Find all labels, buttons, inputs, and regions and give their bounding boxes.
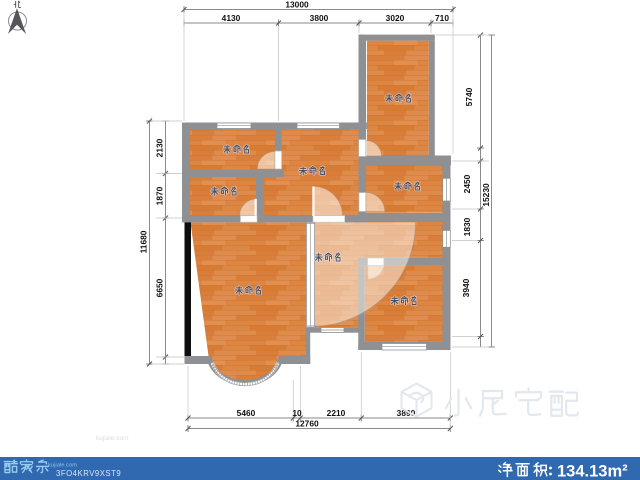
svg-text:kujiale.com: kujiale.com	[96, 435, 129, 442]
svg-text:11680: 11680	[139, 230, 149, 253]
svg-text:10: 10	[292, 408, 302, 418]
svg-text:5460: 5460	[237, 408, 256, 418]
svg-text:710: 710	[435, 13, 449, 23]
svg-text:15230: 15230	[481, 183, 491, 207]
svg-text:kujiale.com: kujiale.com	[48, 463, 77, 469]
svg-text:6650: 6650	[155, 278, 165, 297]
svg-text:3FO4KRV9XST9: 3FO4KRV9XST9	[56, 469, 121, 478]
svg-text:3890: 3890	[397, 408, 416, 418]
svg-text:3020: 3020	[386, 13, 405, 23]
svg-text:1830: 1830	[462, 217, 472, 236]
svg-text:4130: 4130	[222, 13, 241, 23]
svg-text:13000: 13000	[285, 0, 309, 10]
svg-text:1870: 1870	[155, 186, 165, 205]
svg-text:2130: 2130	[155, 138, 165, 157]
svg-text:3940: 3940	[461, 278, 471, 297]
svg-text:12760: 12760	[295, 419, 319, 429]
svg-text:2210: 2210	[327, 408, 346, 418]
svg-text:2450: 2450	[462, 174, 472, 193]
svg-text:134.13m²: 134.13m²	[557, 463, 628, 480]
svg-text:5740: 5740	[464, 87, 474, 106]
svg-text:3800: 3800	[310, 13, 329, 23]
